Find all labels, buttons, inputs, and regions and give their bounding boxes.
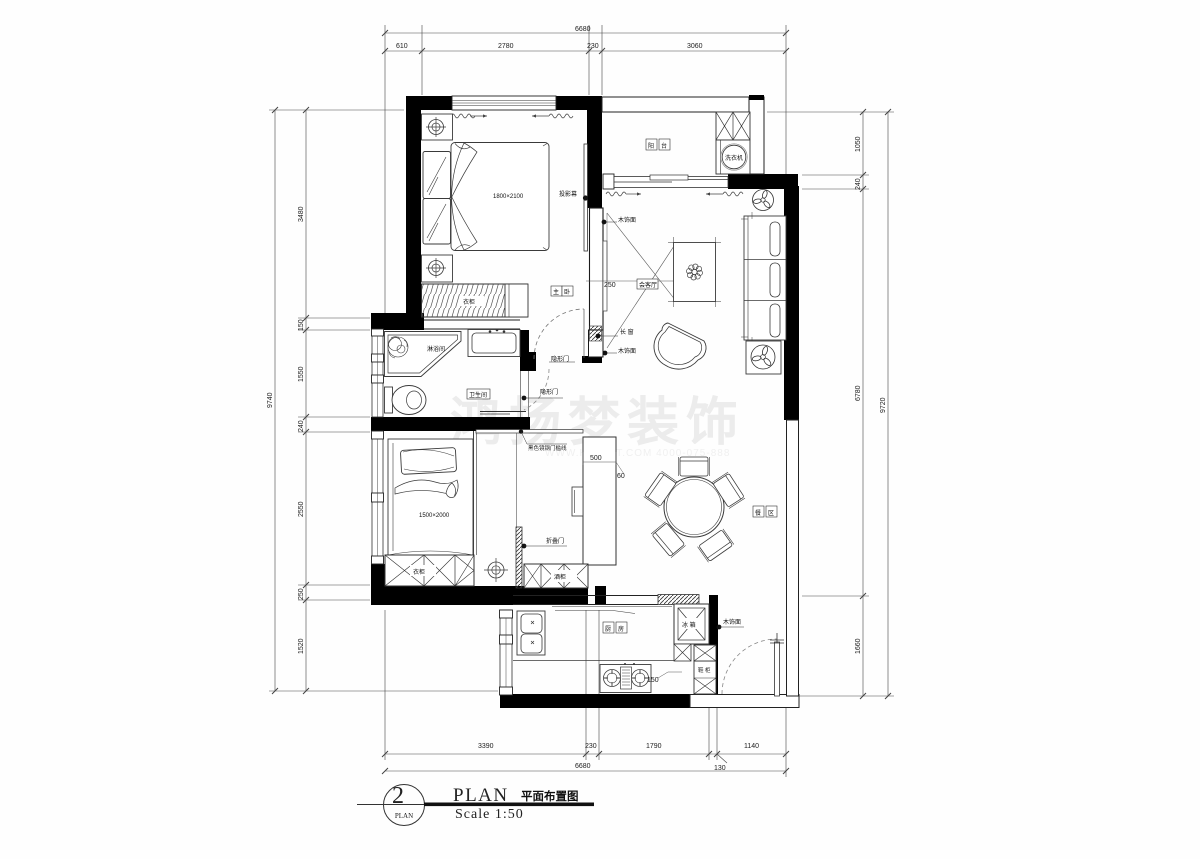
svg-text:9720: 9720 (880, 397, 887, 413)
svg-text:主: 主 (553, 288, 559, 296)
svg-text:冰 箱: 冰 箱 (682, 621, 696, 629)
svg-text:230: 230 (587, 43, 599, 50)
svg-text:会客厅: 会客厅 (639, 281, 657, 289)
svg-text:折叠门: 折叠门 (546, 537, 564, 545)
svg-text:240: 240 (855, 178, 862, 190)
svg-text:隐形门: 隐形门 (540, 388, 558, 396)
svg-text:投影幕: 投影幕 (559, 190, 577, 198)
svg-text:平面布置图: 平面布置图 (521, 789, 579, 803)
svg-text:250: 250 (298, 588, 305, 600)
svg-text:餐: 餐 (755, 509, 761, 517)
svg-text:1550: 1550 (298, 366, 305, 382)
svg-text:6780: 6780 (855, 385, 862, 401)
svg-text:500: 500 (590, 455, 602, 462)
svg-text:木饰面: 木饰面 (618, 216, 636, 224)
svg-text:240: 240 (298, 420, 305, 432)
svg-text:卧: 卧 (564, 288, 570, 296)
svg-text:1140: 1140 (744, 743, 759, 750)
svg-text:PLAN: PLAN (395, 812, 413, 820)
svg-text:6680: 6680 (575, 26, 591, 33)
svg-text:150: 150 (298, 319, 305, 331)
svg-text:厨: 厨 (605, 626, 611, 633)
svg-text:Scale 1:50: Scale 1:50 (455, 807, 524, 822)
svg-text:鞋 柜: 鞋 柜 (698, 666, 711, 674)
svg-text:洗衣机: 洗衣机 (725, 154, 743, 162)
svg-text:60: 60 (617, 473, 625, 480)
svg-text:酒柜: 酒柜 (554, 573, 566, 581)
svg-text:6680: 6680 (575, 763, 591, 770)
svg-text:隐形门: 隐形门 (551, 355, 569, 363)
svg-text:3480: 3480 (298, 206, 305, 222)
svg-text:黑色镜钢门槛线: 黑色镜钢门槛线 (528, 444, 567, 452)
svg-text:1800×2100: 1800×2100 (493, 194, 524, 200)
svg-text:230: 230 (585, 743, 597, 750)
svg-text:区: 区 (768, 510, 774, 517)
svg-text:台: 台 (661, 142, 667, 150)
svg-text:房: 房 (618, 625, 624, 633)
svg-text:130: 130 (714, 765, 726, 772)
svg-text:1500×2000: 1500×2000 (419, 513, 450, 519)
svg-text:木饰面: 木饰面 (618, 347, 636, 355)
svg-text:2550: 2550 (298, 501, 305, 517)
svg-text:木饰面: 木饰面 (723, 618, 741, 626)
svg-text:9740: 9740 (267, 392, 274, 408)
svg-text:150: 150 (647, 677, 659, 684)
svg-text:1520: 1520 (298, 638, 305, 654)
svg-text:2780: 2780 (498, 43, 514, 50)
svg-text:1790: 1790 (646, 743, 662, 750)
svg-text:250: 250 (604, 282, 616, 289)
svg-text:长 窗: 长 窗 (620, 328, 634, 336)
svg-text:衣柜: 衣柜 (413, 568, 425, 576)
svg-text:3060: 3060 (687, 43, 703, 50)
svg-text:卫生间: 卫生间 (469, 391, 487, 399)
svg-text:2: 2 (392, 783, 404, 809)
svg-text:PLAN: PLAN (453, 785, 509, 806)
svg-text:淋浴间: 淋浴间 (427, 345, 445, 353)
svg-text:1050: 1050 (855, 136, 862, 152)
svg-text:3390: 3390 (478, 743, 494, 750)
svg-text:610: 610 (396, 43, 408, 50)
svg-text:衣柜: 衣柜 (463, 298, 475, 306)
svg-text:1660: 1660 (855, 638, 862, 654)
svg-text:阳: 阳 (648, 142, 654, 150)
